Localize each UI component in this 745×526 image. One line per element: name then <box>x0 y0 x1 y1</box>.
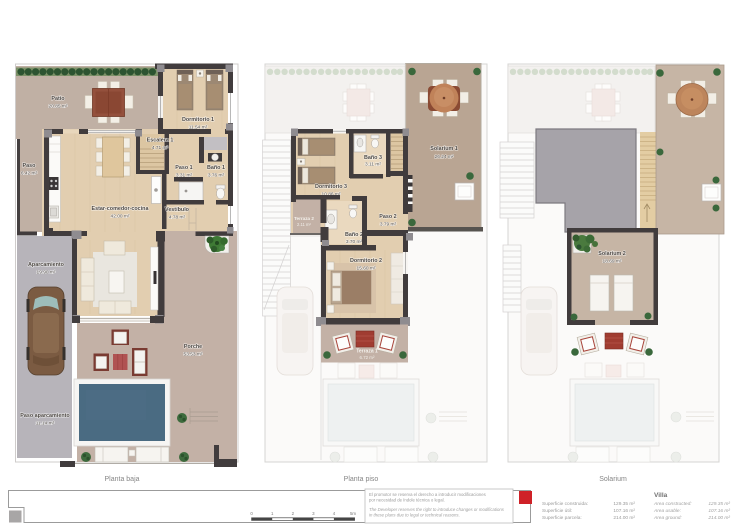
svg-text:19.90 m²: 19.90 m² <box>37 270 56 276</box>
svg-text:Baño 1: Baño 1 <box>207 165 225 171</box>
svg-text:The Developer reserves the rig: The Developer reserves the right to intr… <box>369 507 505 512</box>
svg-text:Paso: Paso <box>23 163 37 169</box>
svg-text:Villa: Villa <box>654 492 668 499</box>
svg-text:26.24 m²: 26.24 m² <box>435 154 454 160</box>
svg-text:Area usable:: Area usable: <box>653 508 682 514</box>
svg-text:53.53 m²: 53.53 m² <box>184 352 203 358</box>
svg-text:6.42 m²: 6.42 m² <box>21 171 38 177</box>
svg-text:Aparcamiento: Aparcamiento <box>28 262 65 268</box>
svg-text:Terraza 2: Terraza 2 <box>294 216 314 221</box>
svg-text:3.11 m²: 3.11 m² <box>365 162 381 168</box>
svg-text:Planta piso: Planta piso <box>344 476 379 483</box>
svg-text:Superficie útil:: Superficie útil: <box>542 508 572 514</box>
svg-text:Superficie construida:: Superficie construida: <box>542 501 588 507</box>
svg-text:129.35 m²: 129.35 m² <box>708 501 730 507</box>
svg-text:11.54 m²: 11.54 m² <box>189 125 208 131</box>
svg-text:15.60 m²: 15.60 m² <box>357 266 376 272</box>
svg-text:Estar-comedor-cocina: Estar-comedor-cocina <box>92 206 150 212</box>
svg-text:Solarium 2: Solarium 2 <box>598 251 626 257</box>
svg-text:Solarium: Solarium <box>599 476 627 483</box>
svg-text:Solarium 1: Solarium 1 <box>430 146 458 152</box>
svg-text:6.72 m²: 6.72 m² <box>360 355 375 360</box>
svg-text:3.79 m²: 3.79 m² <box>380 222 397 228</box>
svg-text:214.00 m²: 214.00 m² <box>707 515 730 521</box>
svg-text:Baño 3: Baño 3 <box>364 155 382 161</box>
svg-text:Escalera 1: Escalera 1 <box>147 138 174 144</box>
svg-text:3.70 m²: 3.70 m² <box>346 239 363 245</box>
svg-text:Patio: Patio <box>51 96 65 102</box>
svg-text:107.16 m²: 107.16 m² <box>613 508 635 514</box>
svg-text:107.16 m²: 107.16 m² <box>708 508 730 514</box>
svg-text:3.76 m²: 3.76 m² <box>208 173 225 179</box>
svg-text:42.00 m²: 42.00 m² <box>111 214 130 220</box>
svg-text:Paso aparcamiento: Paso aparcamiento <box>20 413 70 419</box>
svg-text:Paso 2: Paso 2 <box>379 214 396 220</box>
svg-text:Porche: Porche <box>184 344 202 350</box>
svg-text:Terraza 1: Terraza 1 <box>356 349 378 355</box>
svg-text:20.85 m²: 20.85 m² <box>49 104 68 110</box>
svg-text:Area constructed:: Area constructed: <box>653 501 692 507</box>
svg-text:3.31 m²: 3.31 m² <box>176 173 193 179</box>
svg-text:Vestíbulo: Vestíbulo <box>165 207 190 213</box>
svg-text:4.71 m²: 4.71 m² <box>152 145 169 151</box>
svg-text:El promotor se reserva el dere: El promotor se reserva el derecho a intr… <box>369 492 486 497</box>
svg-text:Dormitorio 3: Dormitorio 3 <box>315 184 347 190</box>
svg-text:Dormitorio 2: Dormitorio 2 <box>350 258 382 264</box>
svg-text:214.00 m²: 214.00 m² <box>613 515 635 521</box>
svg-text:11.14 m²: 11.14 m² <box>36 421 55 427</box>
svg-text:por necesidad de índole técnic: por necesidad de índole técnica o legal. <box>369 498 445 503</box>
svg-text:129.35 m²: 129.35 m² <box>613 501 635 507</box>
svg-text:Planta baja: Planta baja <box>104 476 139 483</box>
svg-text:5m: 5m <box>350 511 356 516</box>
svg-text:Baño 2: Baño 2 <box>345 232 363 238</box>
svg-text:in these plans due to legal or: in these plans due to legal or technical… <box>369 513 460 518</box>
svg-text:2.11 m²: 2.11 m² <box>297 222 311 227</box>
svg-text:Paso 1: Paso 1 <box>175 165 192 171</box>
svg-text:Dormitorio 1: Dormitorio 1 <box>182 117 214 123</box>
svg-text:18.69 m²: 18.69 m² <box>603 259 622 265</box>
svg-text:Superficie parcela:: Superficie parcela: <box>542 515 582 521</box>
svg-text:4.78 m²: 4.78 m² <box>169 215 186 221</box>
svg-text:Area ground:: Area ground: <box>653 515 682 521</box>
